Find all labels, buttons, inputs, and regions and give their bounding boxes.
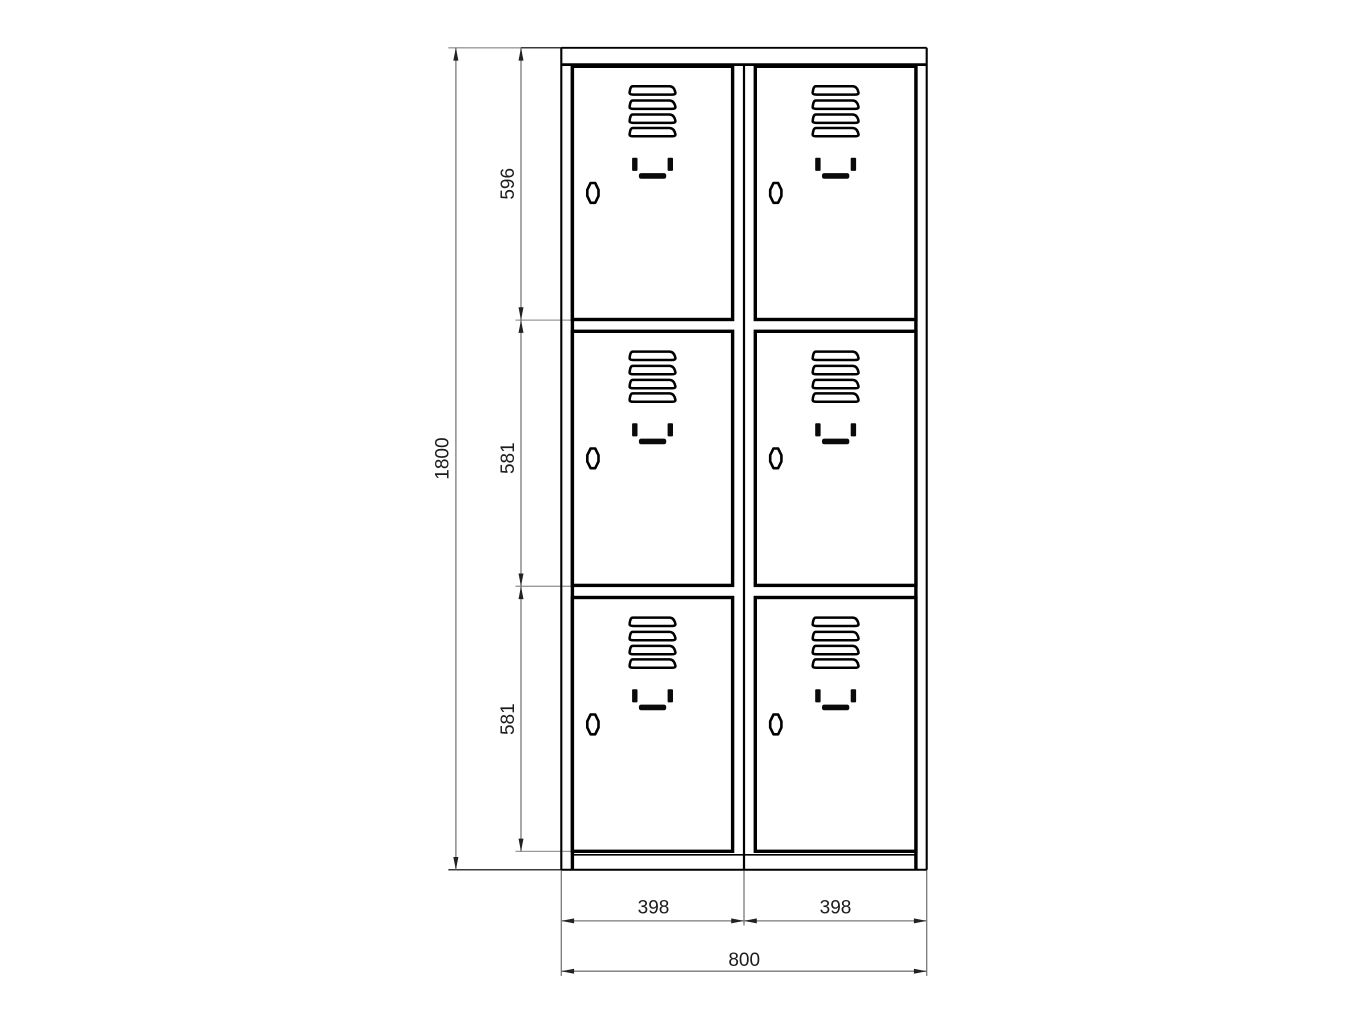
- svg-text:581: 581: [498, 442, 519, 474]
- svg-text:581: 581: [498, 703, 519, 735]
- svg-text:596: 596: [498, 168, 519, 200]
- svg-text:800: 800: [728, 950, 760, 971]
- svg-text:1800: 1800: [433, 437, 454, 479]
- svg-text:398: 398: [638, 898, 670, 919]
- svg-text:398: 398: [820, 898, 852, 919]
